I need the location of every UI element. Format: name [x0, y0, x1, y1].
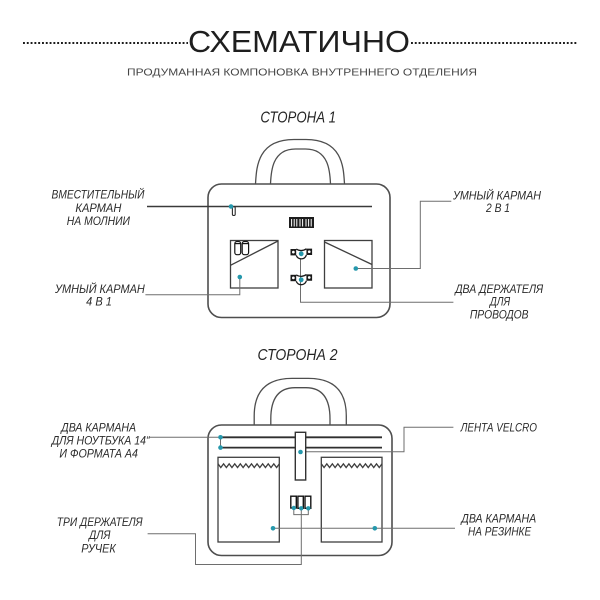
svg-text:И ФОРМАТА А4: И ФОРМАТА А4 [59, 446, 138, 460]
svg-text:СХЕМАТИЧНО: СХЕМАТИЧНО [188, 24, 410, 59]
svg-text:ДЛЯ: ДЛЯ [87, 528, 111, 542]
svg-text:4 В 1: 4 В 1 [86, 295, 112, 309]
svg-text:НА МОЛНИИ: НА МОЛНИИ [67, 214, 131, 228]
svg-text:НА РЕЗИНКЕ: НА РЕЗИНКЕ [468, 524, 531, 538]
svg-text:ВМЕСТИТЕЛЬНЫЙ: ВМЕСТИТЕЛЬНЫЙ [52, 187, 145, 201]
svg-text:ДЛЯ НОУТБУКА 14“: ДЛЯ НОУТБУКА 14“ [50, 434, 151, 448]
svg-text:УМНЫЙ КАРМАН: УМНЫЙ КАРМАН [54, 282, 145, 296]
svg-text:2 В 1: 2 В 1 [485, 201, 510, 215]
svg-text:РУЧЕК: РУЧЕК [81, 541, 116, 555]
svg-text:ДВА КАРМАНА: ДВА КАРМАНА [460, 511, 537, 525]
svg-text:ПРОДУМАННАЯ КОМПОНОВКА ВНУТРЕН: ПРОДУМАННАЯ КОМПОНОВКА ВНУТРЕННЕГО ОТДЕЛ… [127, 68, 477, 79]
svg-text:КАРМАН: КАРМАН [75, 201, 121, 215]
svg-text:СТОРОНА 2: СТОРОНА 2 [258, 347, 338, 364]
svg-text:ДЛЯ: ДЛЯ [488, 295, 511, 309]
svg-text:ЛЕНТА VELCRO: ЛЕНТА VELCRO [460, 421, 537, 435]
svg-text:СТОРОНА 1: СТОРОНА 1 [260, 109, 336, 126]
svg-text:ПРОВОДОВ: ПРОВОДОВ [470, 308, 529, 322]
svg-text:УМНЫЙ КАРМАН: УМНЫЙ КАРМАН [452, 188, 541, 202]
svg-text:ТРИ ДЕРЖАТЕЛЯ: ТРИ ДЕРЖАТЕЛЯ [57, 515, 144, 529]
svg-text:ДВА КАРМАНА: ДВА КАРМАНА [60, 421, 137, 435]
svg-text:ДВА ДЕРЖАТЕЛЯ: ДВА ДЕРЖАТЕЛЯ [453, 282, 544, 296]
